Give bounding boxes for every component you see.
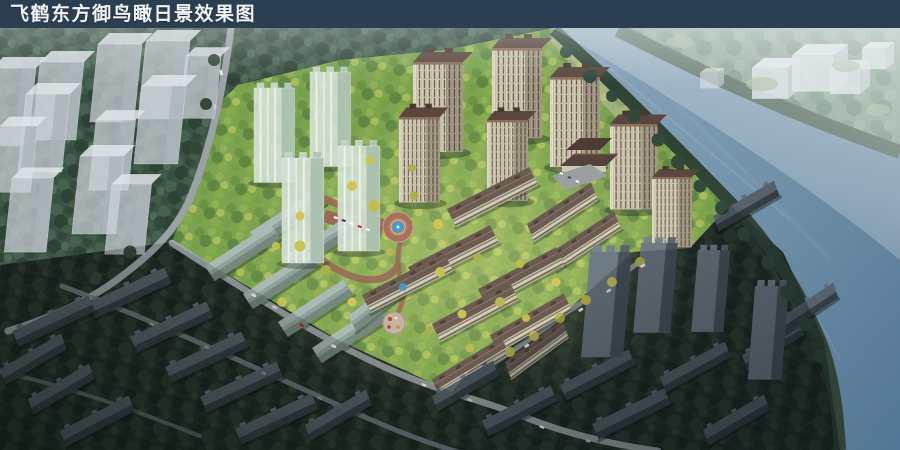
playground <box>383 312 405 334</box>
aerial-rendering <box>0 0 900 450</box>
title-bar: 飞鹤东方御鸟瞰日景效果图 <box>0 0 900 28</box>
page-title: 飞鹤东方御鸟瞰日景效果图 <box>10 0 256 28</box>
small-pool <box>399 283 407 291</box>
rendering-stage: 飞鹤东方御鸟瞰日景效果图 <box>0 0 900 450</box>
